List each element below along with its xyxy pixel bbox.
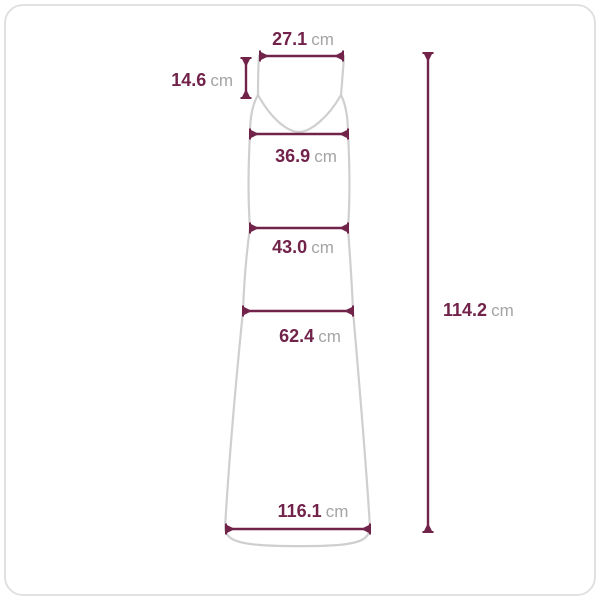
measurement-label-hem: 116.1 cm [278, 502, 349, 520]
dimension-lines [226, 53, 428, 532]
measurement-value: 62.4 [279, 327, 314, 345]
measurement-unit: cm [314, 148, 337, 165]
measurement-value: 116.1 [278, 502, 322, 520]
measurement-unit: cm [311, 239, 334, 256]
measurement-label-strap-drop: 14.6 cm [171, 71, 233, 89]
measurement-label-waist: 43.0 cm [272, 238, 334, 256]
measurement-label-hip: 62.4 cm [279, 327, 341, 345]
dress-neckline [258, 95, 341, 132]
measurement-label-top-width: 27.1 cm [272, 30, 334, 48]
dress-measurement-diagram: 27.1 cm 14.6 cm 36.9 cm 43.0 cm 62.4 cm … [0, 0, 600, 600]
measurement-unit: cm [326, 503, 349, 520]
measurement-value: 36.9 [275, 147, 310, 165]
measurement-unit: cm [311, 31, 334, 48]
measurement-value: 27.1 [272, 30, 307, 48]
measurement-unit: cm [210, 72, 233, 89]
measurement-unit: cm [318, 328, 341, 345]
dress-strap-left [258, 56, 259, 95]
dress-strap-right [341, 56, 344, 95]
measurement-unit: cm [491, 302, 514, 319]
measurement-label-length: 114.2 cm [443, 301, 514, 319]
measurement-label-bust: 36.9 cm [275, 147, 337, 165]
measurement-value: 14.6 [171, 71, 206, 89]
dress-outline [225, 56, 370, 546]
measurement-value: 43.0 [272, 238, 307, 256]
measurement-value: 114.2 [443, 301, 487, 319]
